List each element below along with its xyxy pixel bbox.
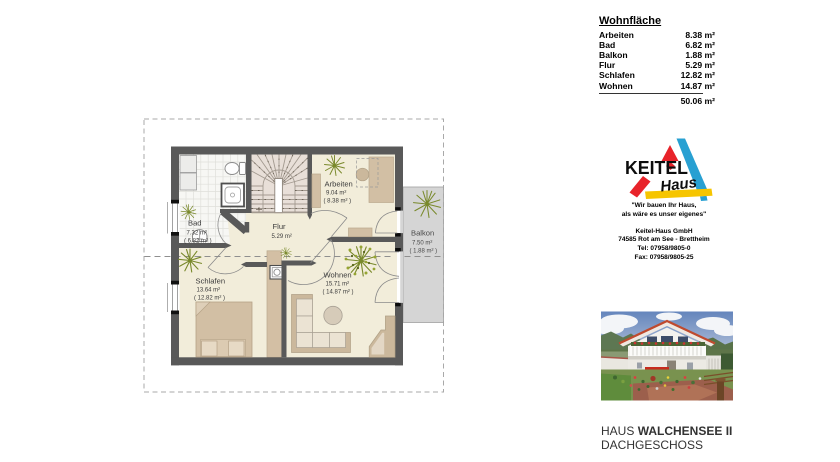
svg-text:Schlafen: Schlafen — [196, 277, 226, 286]
svg-text:7.32 m²: 7.32 m² — [187, 231, 207, 237]
svg-text:15.71 m²: 15.71 m² — [326, 282, 350, 288]
svg-text:Bad: Bad — [188, 219, 202, 228]
svg-text:Wohnen: Wohnen — [324, 271, 352, 280]
svg-text:( 6.82 m² ): ( 6.82 m² ) — [184, 239, 212, 245]
svg-text:KEITEL: KEITEL — [625, 157, 688, 178]
svg-text:Arbeiten: Arbeiten — [325, 180, 353, 189]
svg-text:( 1.88 m² ): ( 1.88 m² ) — [410, 249, 438, 255]
svg-text:( 14.87 m² ): ( 14.87 m² ) — [323, 290, 354, 296]
svg-text:Flur: Flur — [273, 222, 287, 231]
svg-text:7.50 m²: 7.50 m² — [412, 241, 432, 247]
svg-text:13.64 m²: 13.64 m² — [197, 288, 221, 294]
svg-text:5.29 m²: 5.29 m² — [272, 234, 292, 240]
svg-text:Balkon: Balkon — [411, 229, 434, 238]
svg-text:( 8.38 m² ): ( 8.38 m² ) — [324, 199, 352, 205]
svg-text:( 12.82 m² ): ( 12.82 m² ) — [194, 296, 225, 302]
svg-text:9.04 m²: 9.04 m² — [326, 191, 346, 197]
